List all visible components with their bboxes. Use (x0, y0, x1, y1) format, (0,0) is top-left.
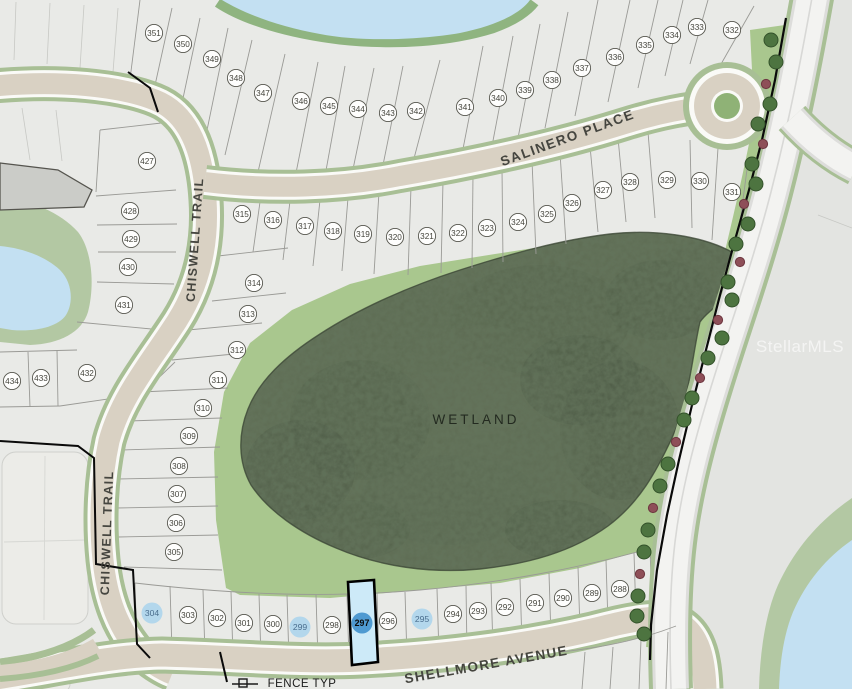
lot-number: 311 (211, 376, 224, 385)
lot-number: 294 (446, 610, 460, 619)
lot-number: 428 (123, 207, 137, 216)
tree-icon (741, 217, 755, 231)
lot-number: 323 (480, 224, 494, 233)
tree-icon (631, 589, 645, 603)
shrub-icon (648, 503, 657, 512)
cul-de-sac (683, 62, 771, 150)
lot-marker-432: 432 (78, 364, 95, 381)
lot-marker-326: 326 (563, 194, 580, 211)
lot-number: 289 (585, 589, 599, 598)
lot-marker-343: 343 (379, 104, 396, 121)
tree-icon (745, 157, 759, 171)
lot-marker-428: 428 (121, 202, 138, 219)
lot-marker-434: 434 (3, 372, 20, 389)
lot-marker-334: 334 (663, 26, 680, 43)
lot-marker-330: 330 (691, 172, 708, 189)
lot-marker-306: 306 (167, 514, 184, 531)
lot-number: 316 (266, 216, 280, 225)
lot-number: 318 (326, 227, 340, 236)
tree-icon (729, 237, 743, 251)
watermark-text: StellarMLS (756, 337, 844, 356)
lot-marker-309: 309 (180, 427, 197, 444)
wetland-label: WETLAND (432, 412, 519, 427)
lot-marker-431: 431 (115, 296, 132, 313)
lot-marker-433: 433 (32, 369, 49, 386)
lot-number: 290 (556, 594, 570, 603)
lot-number: 317 (298, 222, 312, 231)
lot-number: 291 (528, 599, 542, 608)
lot-number: 342 (409, 107, 423, 116)
shrub-icon (671, 437, 680, 446)
lot-number: 335 (638, 41, 652, 50)
lot-number: 315 (235, 210, 249, 219)
lot-marker-348: 348 (227, 69, 244, 86)
lot-number: 351 (147, 29, 161, 38)
lot-number: 298 (325, 621, 339, 630)
site-plan-map: 3513503493483473463453443433423413403393… (0, 0, 852, 689)
shrub-icon (695, 373, 704, 382)
lot-marker-337: 337 (573, 59, 590, 76)
shrub-icon (735, 257, 744, 266)
tree-icon (721, 275, 735, 289)
lot-marker-341: 341 (456, 98, 473, 115)
shrub-icon (758, 139, 767, 148)
lot-marker-321: 321 (418, 227, 435, 244)
tree-icon (701, 351, 715, 365)
tree-icon (764, 33, 778, 47)
lot-marker-302: 302 (208, 609, 225, 626)
lot-marker-344: 344 (349, 100, 366, 117)
lot-number: 324 (511, 218, 525, 227)
lot-marker-319: 319 (354, 225, 371, 242)
lot-marker-325: 325 (538, 205, 555, 222)
lot-marker-301: 301 (235, 614, 252, 631)
lot-number: 302 (210, 614, 224, 623)
lot-number: 333 (690, 23, 704, 32)
lot-marker-328: 328 (621, 173, 638, 190)
lot-marker-295: 295 (412, 609, 433, 630)
lot-marker-297: 297 (352, 613, 373, 634)
lot-marker-311: 311 (209, 371, 226, 388)
lot-number: 319 (356, 230, 370, 239)
lot-marker-304: 304 (142, 603, 163, 624)
tree-icon (763, 97, 777, 111)
lot-marker-294: 294 (444, 605, 461, 622)
lot-marker-350: 350 (174, 35, 191, 52)
lot-marker-336: 336 (606, 48, 623, 65)
lot-marker-346: 346 (292, 92, 309, 109)
lot-number: 339 (518, 86, 532, 95)
lot-marker-351: 351 (145, 24, 162, 41)
lot-number: 304 (145, 608, 160, 618)
lot-number: 349 (205, 55, 219, 64)
lot-number: 429 (124, 235, 138, 244)
lot-marker-305: 305 (165, 543, 182, 560)
lot-number: 331 (725, 188, 739, 197)
lot-marker-331: 331 (723, 183, 740, 200)
lot-marker-345: 345 (320, 97, 337, 114)
lot-marker-289: 289 (583, 584, 600, 601)
lot-number: 288 (613, 585, 627, 594)
lot-number: 322 (451, 229, 465, 238)
lot-marker-335: 335 (636, 36, 653, 53)
lot-number: 321 (420, 232, 434, 241)
lot-number: 341 (458, 103, 472, 112)
lot-number: 348 (229, 74, 243, 83)
shrub-icon (761, 79, 770, 88)
lot-marker-333: 333 (688, 18, 705, 35)
lot-number: 293 (471, 607, 485, 616)
lot-number: 313 (241, 310, 255, 319)
lot-number: 314 (247, 279, 261, 288)
lot-marker-342: 342 (407, 102, 424, 119)
lot-marker-298: 298 (323, 616, 340, 633)
lot-marker-314: 314 (245, 274, 262, 291)
tree-icon (677, 413, 691, 427)
lot-marker-315: 315 (233, 205, 250, 222)
lot-number: 329 (660, 176, 674, 185)
lot-number: 430 (121, 263, 135, 272)
lot-marker-312: 312 (228, 341, 245, 358)
shrub-icon (739, 199, 748, 208)
lot-number: 310 (196, 404, 210, 413)
lot-marker-340: 340 (489, 89, 506, 106)
lot-marker-338: 338 (543, 71, 560, 88)
lot-number: 326 (565, 199, 579, 208)
lot-number: 301 (237, 619, 251, 628)
lot-number: 350 (176, 40, 190, 49)
tree-icon (661, 457, 675, 471)
lot-marker-300: 300 (264, 615, 281, 632)
lot-number: 432 (80, 369, 94, 378)
lot-marker-339: 339 (516, 81, 533, 98)
lot-number: 343 (381, 109, 395, 118)
lot-marker-293: 293 (469, 602, 486, 619)
lot-number: 347 (256, 89, 270, 98)
lot-number: 296 (381, 617, 395, 626)
tree-icon (749, 177, 763, 191)
lot-number: 295 (415, 614, 430, 624)
plat-map-canvas: 3513503493483473463453443433423413403393… (0, 0, 852, 689)
lot-number: 325 (540, 210, 554, 219)
lot-number: 300 (266, 620, 280, 629)
tree-icon (715, 331, 729, 345)
lot-number: 344 (351, 105, 365, 114)
lot-marker-310: 310 (194, 399, 211, 416)
lot-marker-430: 430 (119, 258, 136, 275)
lot-number: 328 (623, 178, 637, 187)
lot-marker-427: 427 (138, 152, 155, 169)
lot-number: 336 (608, 53, 622, 62)
lot-marker-307: 307 (168, 485, 185, 502)
tree-icon (769, 55, 783, 69)
lot-marker-324: 324 (509, 213, 526, 230)
lot-number: 307 (170, 490, 184, 499)
tree-icon (637, 545, 651, 559)
lot-marker-322: 322 (449, 224, 466, 241)
lot-marker-303: 303 (179, 606, 196, 623)
lot-marker-299: 299 (290, 617, 311, 638)
lot-marker-320: 320 (386, 228, 403, 245)
lot-number: 338 (545, 76, 559, 85)
lot-number: 427 (140, 157, 154, 166)
lot-marker-308: 308 (170, 457, 187, 474)
lot-number: 297 (355, 618, 370, 628)
lot-marker-291: 291 (526, 594, 543, 611)
lot-number: 292 (498, 603, 512, 612)
lot-marker-292: 292 (496, 598, 513, 615)
lot-marker-316: 316 (264, 211, 281, 228)
lot-number: 332 (725, 26, 739, 35)
lot-number: 327 (596, 186, 610, 195)
tree-icon (637, 627, 651, 641)
lot-number: 305 (167, 548, 181, 557)
lot-number: 431 (117, 301, 131, 310)
lot-number: 312 (230, 346, 244, 355)
shrub-icon (635, 569, 644, 578)
lot-number: 330 (693, 177, 707, 186)
tree-icon (725, 293, 739, 307)
lot-marker-313: 313 (239, 305, 256, 322)
lot-number: 334 (665, 31, 679, 40)
lot-number: 308 (172, 462, 186, 471)
lot-number: 345 (322, 102, 336, 111)
lot-number: 346 (294, 97, 308, 106)
tree-icon (641, 523, 655, 537)
lot-marker-296: 296 (379, 612, 396, 629)
lot-marker-349: 349 (203, 50, 220, 67)
lot-marker-317: 317 (296, 217, 313, 234)
lot-number: 340 (491, 94, 505, 103)
tree-icon (751, 117, 765, 131)
lot-marker-329: 329 (658, 171, 675, 188)
lot-number: 299 (293, 622, 308, 632)
lot-marker-318: 318 (324, 222, 341, 239)
lot-marker-290: 290 (554, 589, 571, 606)
shrub-icon (713, 315, 722, 324)
lot-marker-347: 347 (254, 84, 271, 101)
tree-icon (685, 391, 699, 405)
tree-icon (653, 479, 667, 493)
lot-number: 434 (5, 377, 19, 386)
lot-marker-288: 288 (611, 580, 628, 597)
tree-icon (630, 609, 644, 623)
lot-number: 433 (34, 374, 48, 383)
lot-marker-323: 323 (478, 219, 495, 236)
lot-marker-332: 332 (723, 21, 740, 38)
lot-number: 303 (181, 611, 195, 620)
fence-typ-note: FENCE TYP (268, 678, 337, 689)
lot-marker-429: 429 (122, 230, 139, 247)
lot-number: 309 (182, 432, 196, 441)
lot-number: 337 (575, 64, 589, 73)
lot-marker-327: 327 (594, 181, 611, 198)
lot-number: 306 (169, 519, 183, 528)
lot-number: 320 (388, 233, 402, 242)
